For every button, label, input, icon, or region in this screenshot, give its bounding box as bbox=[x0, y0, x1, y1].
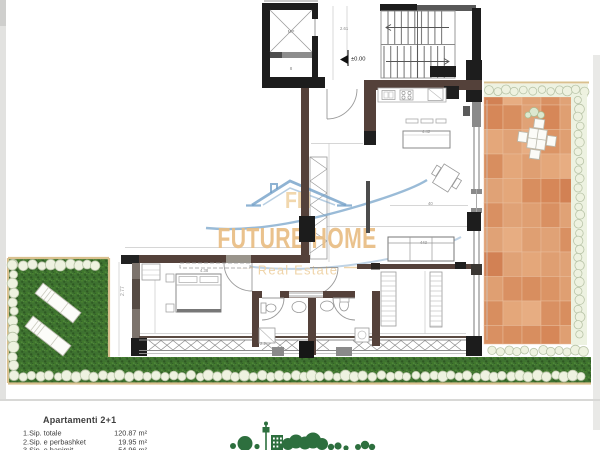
svg-text:54.96 m²: 54.96 m² bbox=[118, 446, 147, 450]
svg-text:120.87 m²: 120.87 m² bbox=[114, 429, 147, 438]
svg-text:1.Sip. totale: 1.Sip. totale bbox=[23, 429, 62, 438]
svg-text:3.Sip. e banimit: 3.Sip. e banimit bbox=[23, 446, 73, 450]
svg-text:FUTURE HOME: FUTURE HOME bbox=[217, 223, 376, 255]
svg-text:2.77: 2.77 bbox=[120, 286, 126, 296]
svg-text:40: 40 bbox=[428, 201, 433, 206]
svg-text:Apartamenti 2+1: Apartamenti 2+1 bbox=[43, 415, 116, 425]
svg-text:2.61: 2.61 bbox=[340, 26, 349, 31]
svg-text:443: 443 bbox=[420, 240, 428, 245]
svg-text:2.2: 2.2 bbox=[260, 341, 266, 346]
svg-text:±0.00: ±0.00 bbox=[351, 57, 365, 63]
svg-text:MP: MP bbox=[288, 29, 295, 34]
svg-text:4.42: 4.42 bbox=[422, 129, 431, 134]
svg-text:4.38: 4.38 bbox=[200, 268, 209, 273]
svg-text:Real Estate: Real Estate bbox=[258, 263, 338, 278]
